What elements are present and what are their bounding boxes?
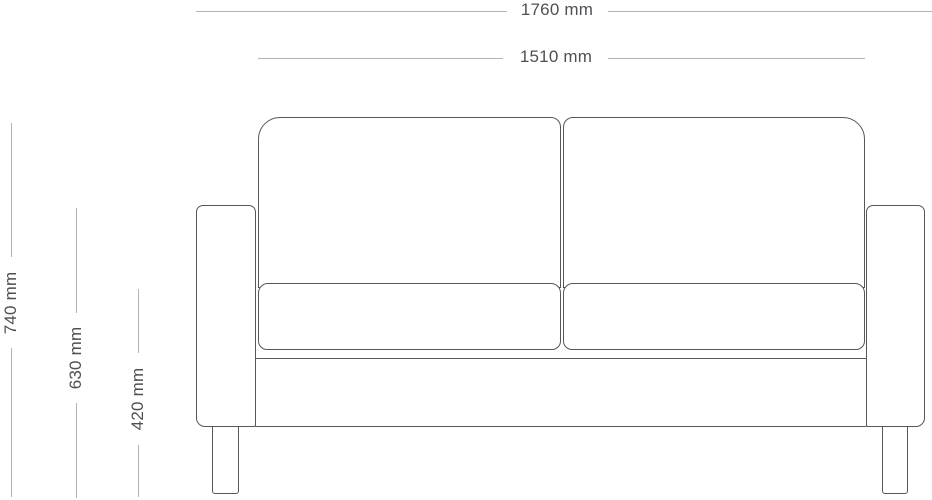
sofa-dimension-diagram: 1760 mm 1510 mm 740 mm 630 mm 420 mm: [0, 0, 932, 500]
dim-overall-height-line-top: [11, 123, 12, 257]
dim-overall-width-label: 1760 mm: [521, 0, 593, 20]
dim-overall-width-line-left: [196, 11, 507, 12]
dim-overall-width-line-right: [608, 11, 932, 12]
sofa-armrest-right: [866, 205, 925, 427]
dim-seat-height-label: 420 mm: [128, 368, 148, 431]
dim-inner-width-line-left: [258, 58, 503, 59]
dim-inner-width-line-right: [608, 58, 865, 59]
sofa-backrest-cushion-left: [258, 117, 561, 288]
dim-seat-height-line-bottom: [138, 445, 139, 497]
dim-armrest-height-line-top: [76, 208, 77, 313]
dim-seat-height-line-top: [138, 289, 139, 353]
dim-overall-height-line-bottom: [11, 348, 12, 497]
dim-armrest-height-label: 630 mm: [66, 327, 86, 390]
dim-armrest-height-line-bottom: [76, 403, 77, 498]
dim-overall-height-label: 740 mm: [1, 272, 21, 335]
sofa-backrest-cushion-right: [563, 117, 865, 288]
sofa-leg-left: [212, 426, 239, 494]
dim-inner-width-label: 1510 mm: [520, 47, 592, 67]
sofa-leg-right: [882, 426, 908, 494]
sofa-armrest-left: [196, 205, 256, 427]
sofa-seat-cushion-right: [563, 283, 865, 350]
sofa-base: [252, 358, 870, 427]
sofa-seat-cushion-left: [258, 283, 561, 350]
